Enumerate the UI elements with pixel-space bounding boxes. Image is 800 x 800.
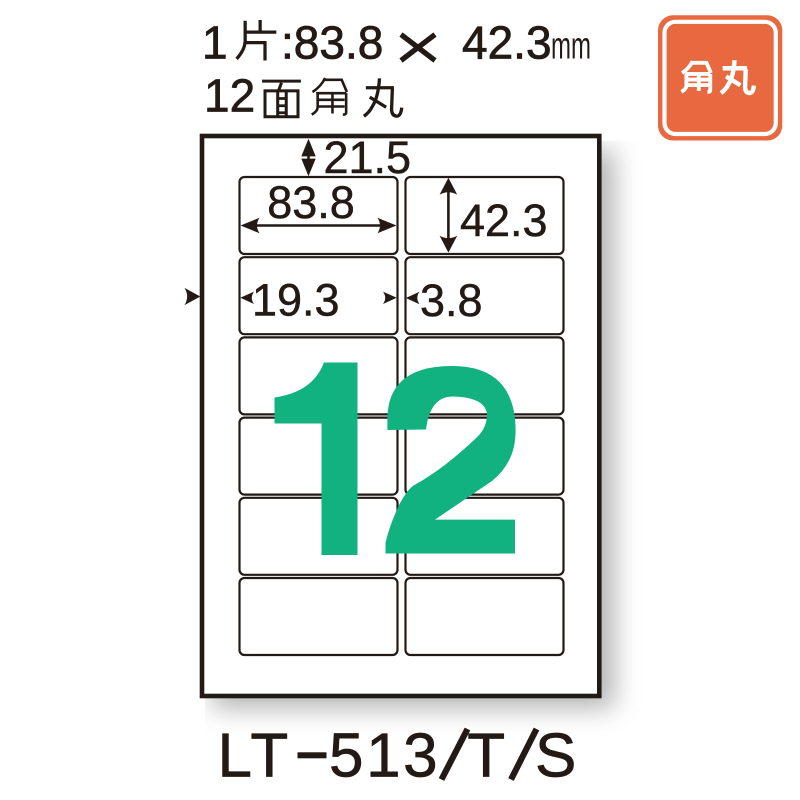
svg-text:S: S <box>535 722 576 791</box>
svg-text:42.3: 42.3 <box>460 195 548 246</box>
svg-text:mm: mm <box>551 26 591 68</box>
svg-text:42.3: 42.3 <box>462 17 552 69</box>
svg-text:21.5: 21.5 <box>324 132 412 183</box>
svg-text::83.8: :83.8 <box>281 17 383 69</box>
svg-text:83.8: 83.8 <box>267 177 355 228</box>
svg-text:513: 513 <box>329 722 440 791</box>
svg-text:LT: LT <box>218 722 292 791</box>
svg-text:19.3: 19.3 <box>252 275 340 326</box>
svg-text:3.8: 3.8 <box>420 275 483 326</box>
svg-text:1: 1 <box>202 17 228 69</box>
svg-text:12: 12 <box>204 70 255 122</box>
svg-text:T: T <box>467 722 505 791</box>
